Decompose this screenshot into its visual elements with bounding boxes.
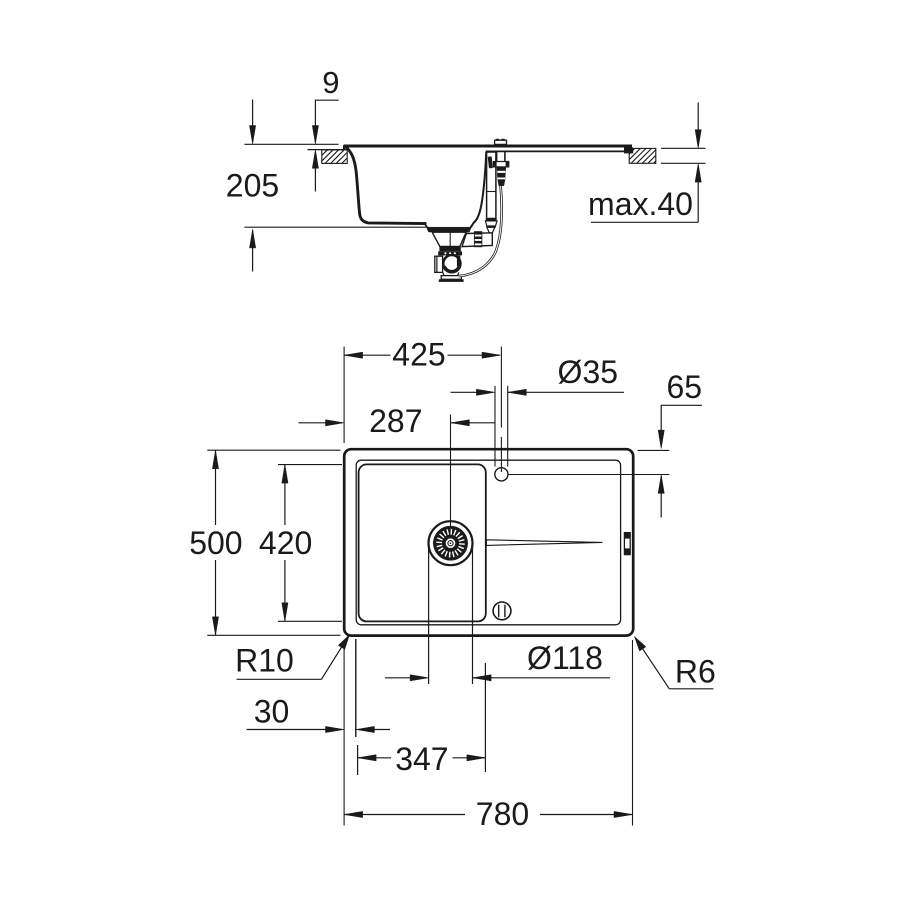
svg-text:65: 65 (667, 369, 703, 405)
svg-text:R10: R10 (235, 642, 294, 678)
svg-text:Ø118: Ø118 (527, 640, 603, 676)
svg-text:max.40: max.40 (588, 186, 693, 222)
svg-text:780: 780 (476, 796, 529, 832)
svg-text:425: 425 (392, 336, 445, 372)
svg-text:205: 205 (226, 167, 279, 203)
svg-text:420: 420 (259, 525, 312, 561)
svg-text:347: 347 (395, 741, 448, 777)
svg-text:9: 9 (322, 65, 339, 100)
svg-text:Ø35: Ø35 (558, 354, 618, 390)
svg-text:30: 30 (254, 694, 290, 730)
svg-text:287: 287 (369, 403, 422, 439)
svg-text:500: 500 (189, 525, 242, 561)
svg-text:R6: R6 (675, 653, 716, 689)
